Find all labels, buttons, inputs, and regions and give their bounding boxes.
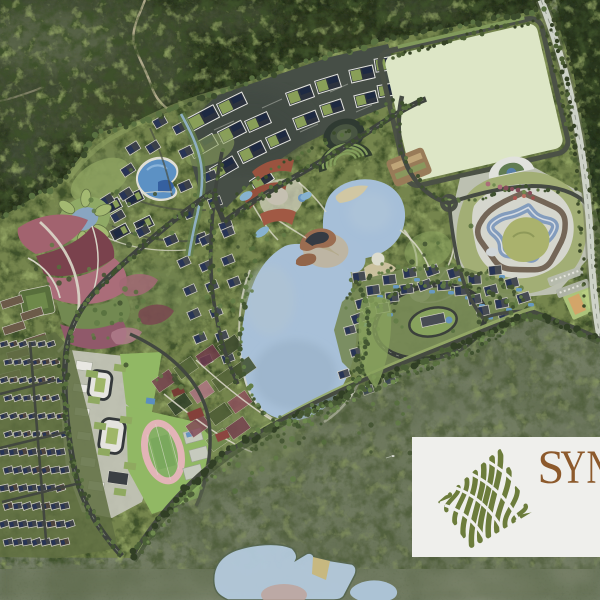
svg-text:N: N <box>587 442 600 495</box>
svg-text:Y: Y <box>561 442 586 495</box>
